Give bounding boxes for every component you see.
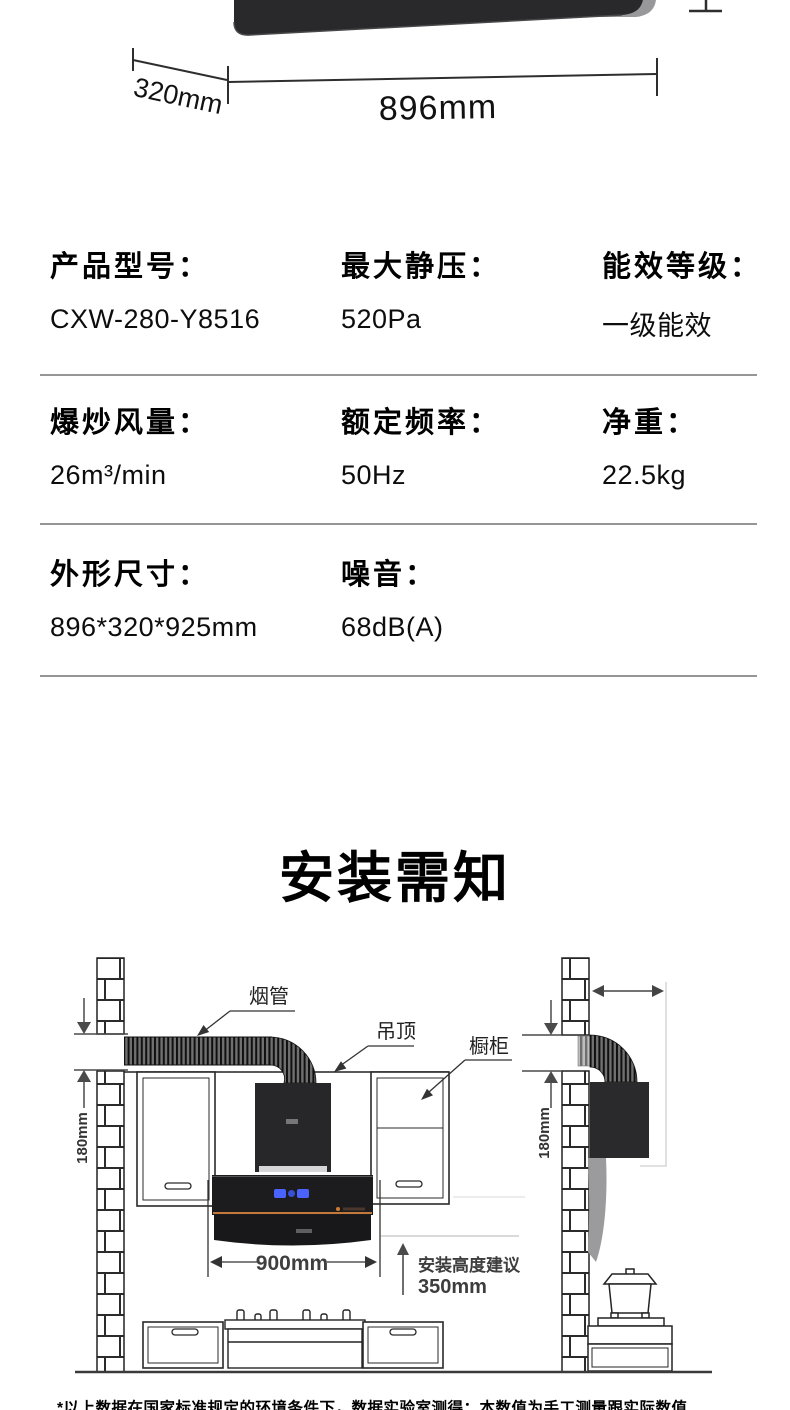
width-dim-line <box>228 74 657 82</box>
base-cabinet-right <box>363 1322 443 1368</box>
spec-label: 产品型号： <box>50 252 260 284</box>
hood-side-panel <box>588 1158 607 1262</box>
wall-cabinet-left <box>137 1072 215 1206</box>
pipe-callout <box>197 1011 295 1036</box>
spec-value: 68dB(A) <box>341 612 444 643</box>
arrowhead-icon <box>197 1025 209 1036</box>
hood-vent-strip <box>259 1166 327 1172</box>
arrow-right-icon <box>365 1256 377 1268</box>
spec-cell-energy-rating: 能效等级： 一级能效 <box>602 252 762 343</box>
arrow-down-icon <box>544 1023 558 1035</box>
hood-display-button <box>288 1190 295 1197</box>
hood-width-label: 900mm <box>256 1252 328 1275</box>
spec-cell-model: 产品型号： CXW-280-Y8516 <box>50 252 260 335</box>
cabinet-handle <box>390 1329 416 1335</box>
left-wall <box>97 958 124 1372</box>
brand-logo <box>286 1119 298 1124</box>
cabinet-handle <box>172 1329 198 1335</box>
range-hood-front <box>212 1083 373 1246</box>
brand-logo <box>296 1229 312 1233</box>
spec-value: 50Hz <box>341 460 501 491</box>
depth-dimension-label: 320mm <box>131 72 225 120</box>
arrow-left-icon <box>210 1256 222 1268</box>
spec-label: 爆炒风量： <box>50 408 210 440</box>
spec-value: 一级能效 <box>602 304 762 343</box>
footnote-text: *以上数据在国家标准规定的环境条件下，数据实验室测得：本数值为手工测量跟实际数值 <box>57 1396 688 1410</box>
cabinet-handle <box>165 1183 191 1189</box>
wall-cabinet-right <box>371 1072 449 1204</box>
pot-and-stove <box>588 1269 672 1371</box>
height-arrow <box>397 1243 409 1295</box>
cabinet-label: 橱柜 <box>469 1035 509 1058</box>
spec-cell-noise: 噪音： 68dB(A) <box>341 560 444 643</box>
hood-display <box>297 1189 309 1198</box>
right-gap-label: 180mm <box>536 1107 553 1159</box>
cabinet-handle <box>396 1181 422 1187</box>
spec-label: 能效等级： <box>602 252 762 284</box>
spec-value: 22.5kg <box>602 460 698 491</box>
ceiling-callout <box>334 1046 414 1072</box>
spec-cell-weight: 净重： 22.5kg <box>602 408 698 491</box>
brand-text-strip <box>343 1208 365 1211</box>
hood-side-body <box>590 1082 649 1158</box>
right-gap-dimension <box>522 1000 562 1108</box>
spec-label: 噪音： <box>341 560 444 592</box>
arrow-down-icon <box>77 1022 91 1034</box>
install-height-note: 安装高度建议 <box>418 1255 521 1275</box>
arrow-up-icon <box>77 1070 91 1082</box>
stove-body <box>588 1326 672 1344</box>
wall-clearance-arrow <box>592 985 664 997</box>
pot-lid <box>604 1274 656 1284</box>
spec-label: 外形尺寸： <box>50 560 258 592</box>
divider <box>40 523 757 525</box>
stove-top <box>598 1318 664 1326</box>
spec-cell-frequency: 额定频率： 50Hz <box>341 408 501 491</box>
spec-cell-static-pressure: 最大静压： 520Pa <box>341 252 501 335</box>
base-cabinet-left <box>143 1322 223 1368</box>
spec-value: CXW-280-Y8516 <box>50 304 260 335</box>
ceiling-label: 吊顶 <box>376 1021 416 1043</box>
left-gap-label: 180mm <box>74 1112 91 1164</box>
spec-value: 26m³/min <box>50 460 210 491</box>
pot-body <box>609 1284 651 1313</box>
arrow-up-icon <box>397 1243 409 1255</box>
width-dimension-label: 896mm <box>378 88 497 128</box>
cooktop <box>225 1310 365 1368</box>
install-height-value: 350mm <box>418 1276 487 1298</box>
spec-label: 额定频率： <box>341 408 501 440</box>
spec-value: 896*320*925mm <box>50 612 258 643</box>
duct-wall-stub <box>578 1036 590 1066</box>
hero-graphic: 320mm 896mm <box>0 0 790 230</box>
spec-label: 净重： <box>602 408 698 440</box>
brand-dot <box>336 1207 340 1211</box>
divider <box>40 374 757 376</box>
spec-cell-dimensions: 外形尺寸： 896*320*925mm <box>50 560 258 643</box>
product-detail-page: 320mm 896mm 产品型号： CXW-280-Y8516 最大静压： 52… <box>0 0 790 1410</box>
spec-value: 520Pa <box>341 304 501 335</box>
right-wall <box>562 958 589 1372</box>
installation-diagram: 180mm <box>0 930 790 1390</box>
pipe-label: 烟管 <box>249 985 289 1008</box>
arrow-up-icon <box>544 1071 558 1083</box>
arrow-right-icon <box>652 985 664 997</box>
install-section-title: 安装需知 <box>0 833 790 913</box>
hood-lower-panel <box>214 1215 371 1246</box>
divider <box>40 675 757 677</box>
spec-label: 最大静压： <box>341 252 501 284</box>
hood-display <box>274 1189 286 1198</box>
product-photo-bottom <box>234 0 656 35</box>
stove-base-inner <box>592 1348 668 1367</box>
duct-elbow <box>590 1035 637 1082</box>
arrow-left-icon <box>592 985 604 997</box>
hood-chimney <box>255 1083 331 1172</box>
spec-cell-airflow: 爆炒风量： 26m³/min <box>50 408 210 491</box>
